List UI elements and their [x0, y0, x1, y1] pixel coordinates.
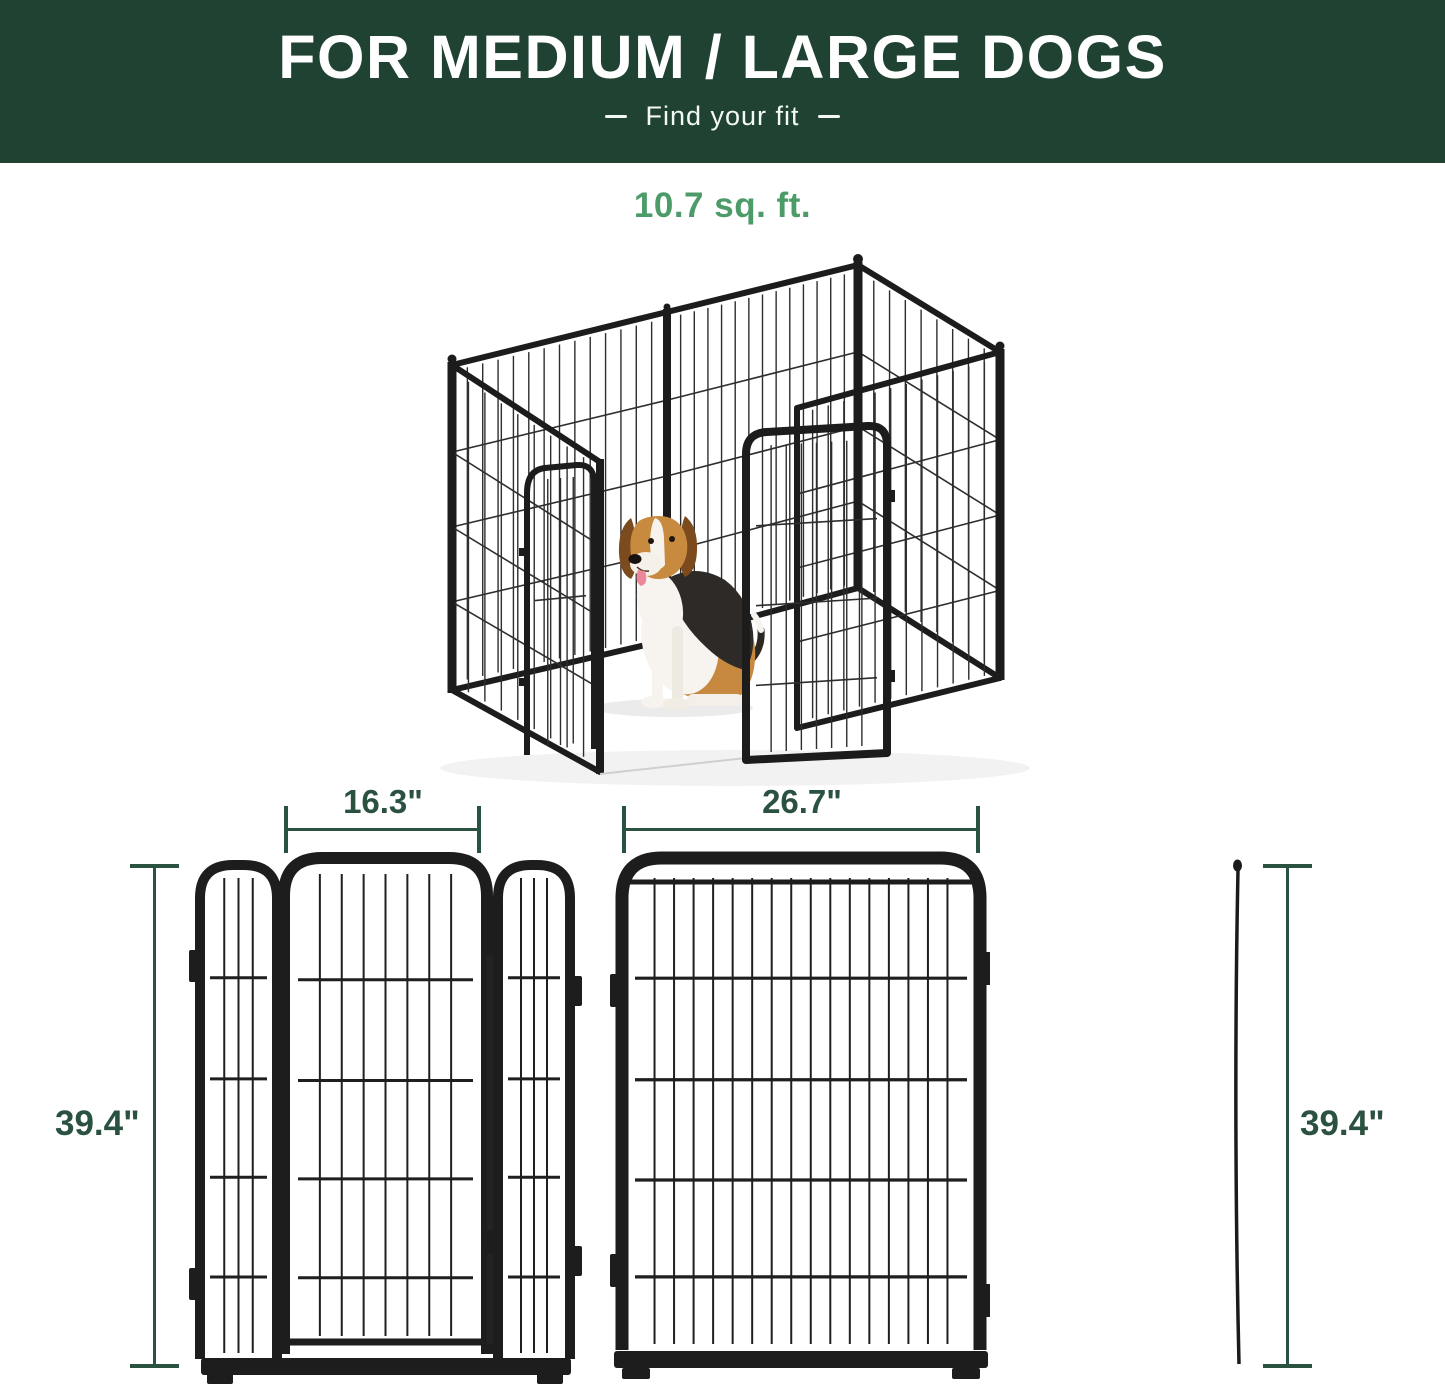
- beagle-dog: [619, 516, 761, 710]
- dog-eye-left: [648, 538, 654, 544]
- dog-front-leg-right: [672, 626, 683, 702]
- height-dim-left-cap-top: [130, 864, 179, 868]
- wide-width-label: 26.7": [625, 783, 979, 821]
- door-hinge-pin-bottom: [274, 1216, 285, 1229]
- wide-panel-frame: [622, 858, 980, 1350]
- wide-width-cap-right: [976, 806, 980, 853]
- dog-front-leg-left: [652, 622, 663, 700]
- dog-front-paw-right: [663, 698, 689, 710]
- door-hinge-pin-top: [274, 949, 285, 962]
- area-label: 10.7 sq. ft.: [0, 186, 1445, 226]
- dog-tongue: [637, 570, 647, 586]
- dog-rear-paw: [687, 694, 743, 706]
- wide-panel-base-bar: [614, 1351, 988, 1368]
- door-panel-left-section: [200, 865, 277, 1359]
- page-title: FOR MEDIUM / LARGE DOGS: [278, 22, 1167, 92]
- subtitle-row: Find your fit: [605, 101, 839, 132]
- subtitle-dash-right: [818, 115, 840, 118]
- door-panel-foot-right: [537, 1373, 563, 1384]
- door-panel-front-view: [185, 850, 585, 1390]
- subtitle-dash-left: [605, 115, 627, 118]
- height-dim-right-cap-bottom: [1263, 1364, 1312, 1368]
- wide-panel-connector-tabs: [610, 952, 990, 1317]
- dog-front-paw-left: [641, 696, 667, 708]
- door-width-label: 16.3": [287, 783, 479, 821]
- playpen-illustration: [425, 250, 1045, 790]
- door-width-cap-left: [284, 806, 288, 853]
- panel-side-view: [1222, 856, 1256, 1376]
- subtitle-label: Find your fit: [645, 101, 799, 132]
- door-panel-base-bar: [201, 1358, 571, 1375]
- height-dim-left-line: [153, 866, 156, 1368]
- door-panel-foot-left: [207, 1373, 233, 1384]
- door-panel-right-section: [498, 865, 570, 1359]
- pen-front-right-panel: [797, 352, 1000, 728]
- door-width-cap-right: [477, 806, 481, 853]
- wide-panel-foot-right: [952, 1368, 980, 1379]
- door-latch-rod: [486, 955, 494, 1344]
- height-dim-right-cap-top: [1263, 864, 1312, 868]
- height-dim-left-cap-bottom: [130, 1364, 179, 1368]
- height-dim-left-label: 39.4": [55, 1104, 140, 1144]
- panel-side-rod: [1236, 870, 1239, 1364]
- pen-floor-shadow: [440, 750, 1030, 786]
- door-panel-door-section: [284, 858, 487, 1354]
- height-dim-right-label: 39.4": [1300, 1104, 1385, 1144]
- wide-panel-front-view: [610, 846, 990, 1391]
- wide-width-cap-left: [622, 806, 626, 853]
- height-dim-right-line: [1286, 866, 1289, 1368]
- panel-side-ball: [1233, 860, 1242, 872]
- dog-nose: [629, 554, 642, 564]
- door-width-line: [287, 828, 479, 831]
- wide-width-line: [625, 828, 979, 831]
- wide-panel-foot-left: [622, 1368, 650, 1379]
- header-banner: FOR MEDIUM / LARGE DOGS Find your fit: [0, 0, 1445, 163]
- dog-eye-right: [669, 536, 675, 542]
